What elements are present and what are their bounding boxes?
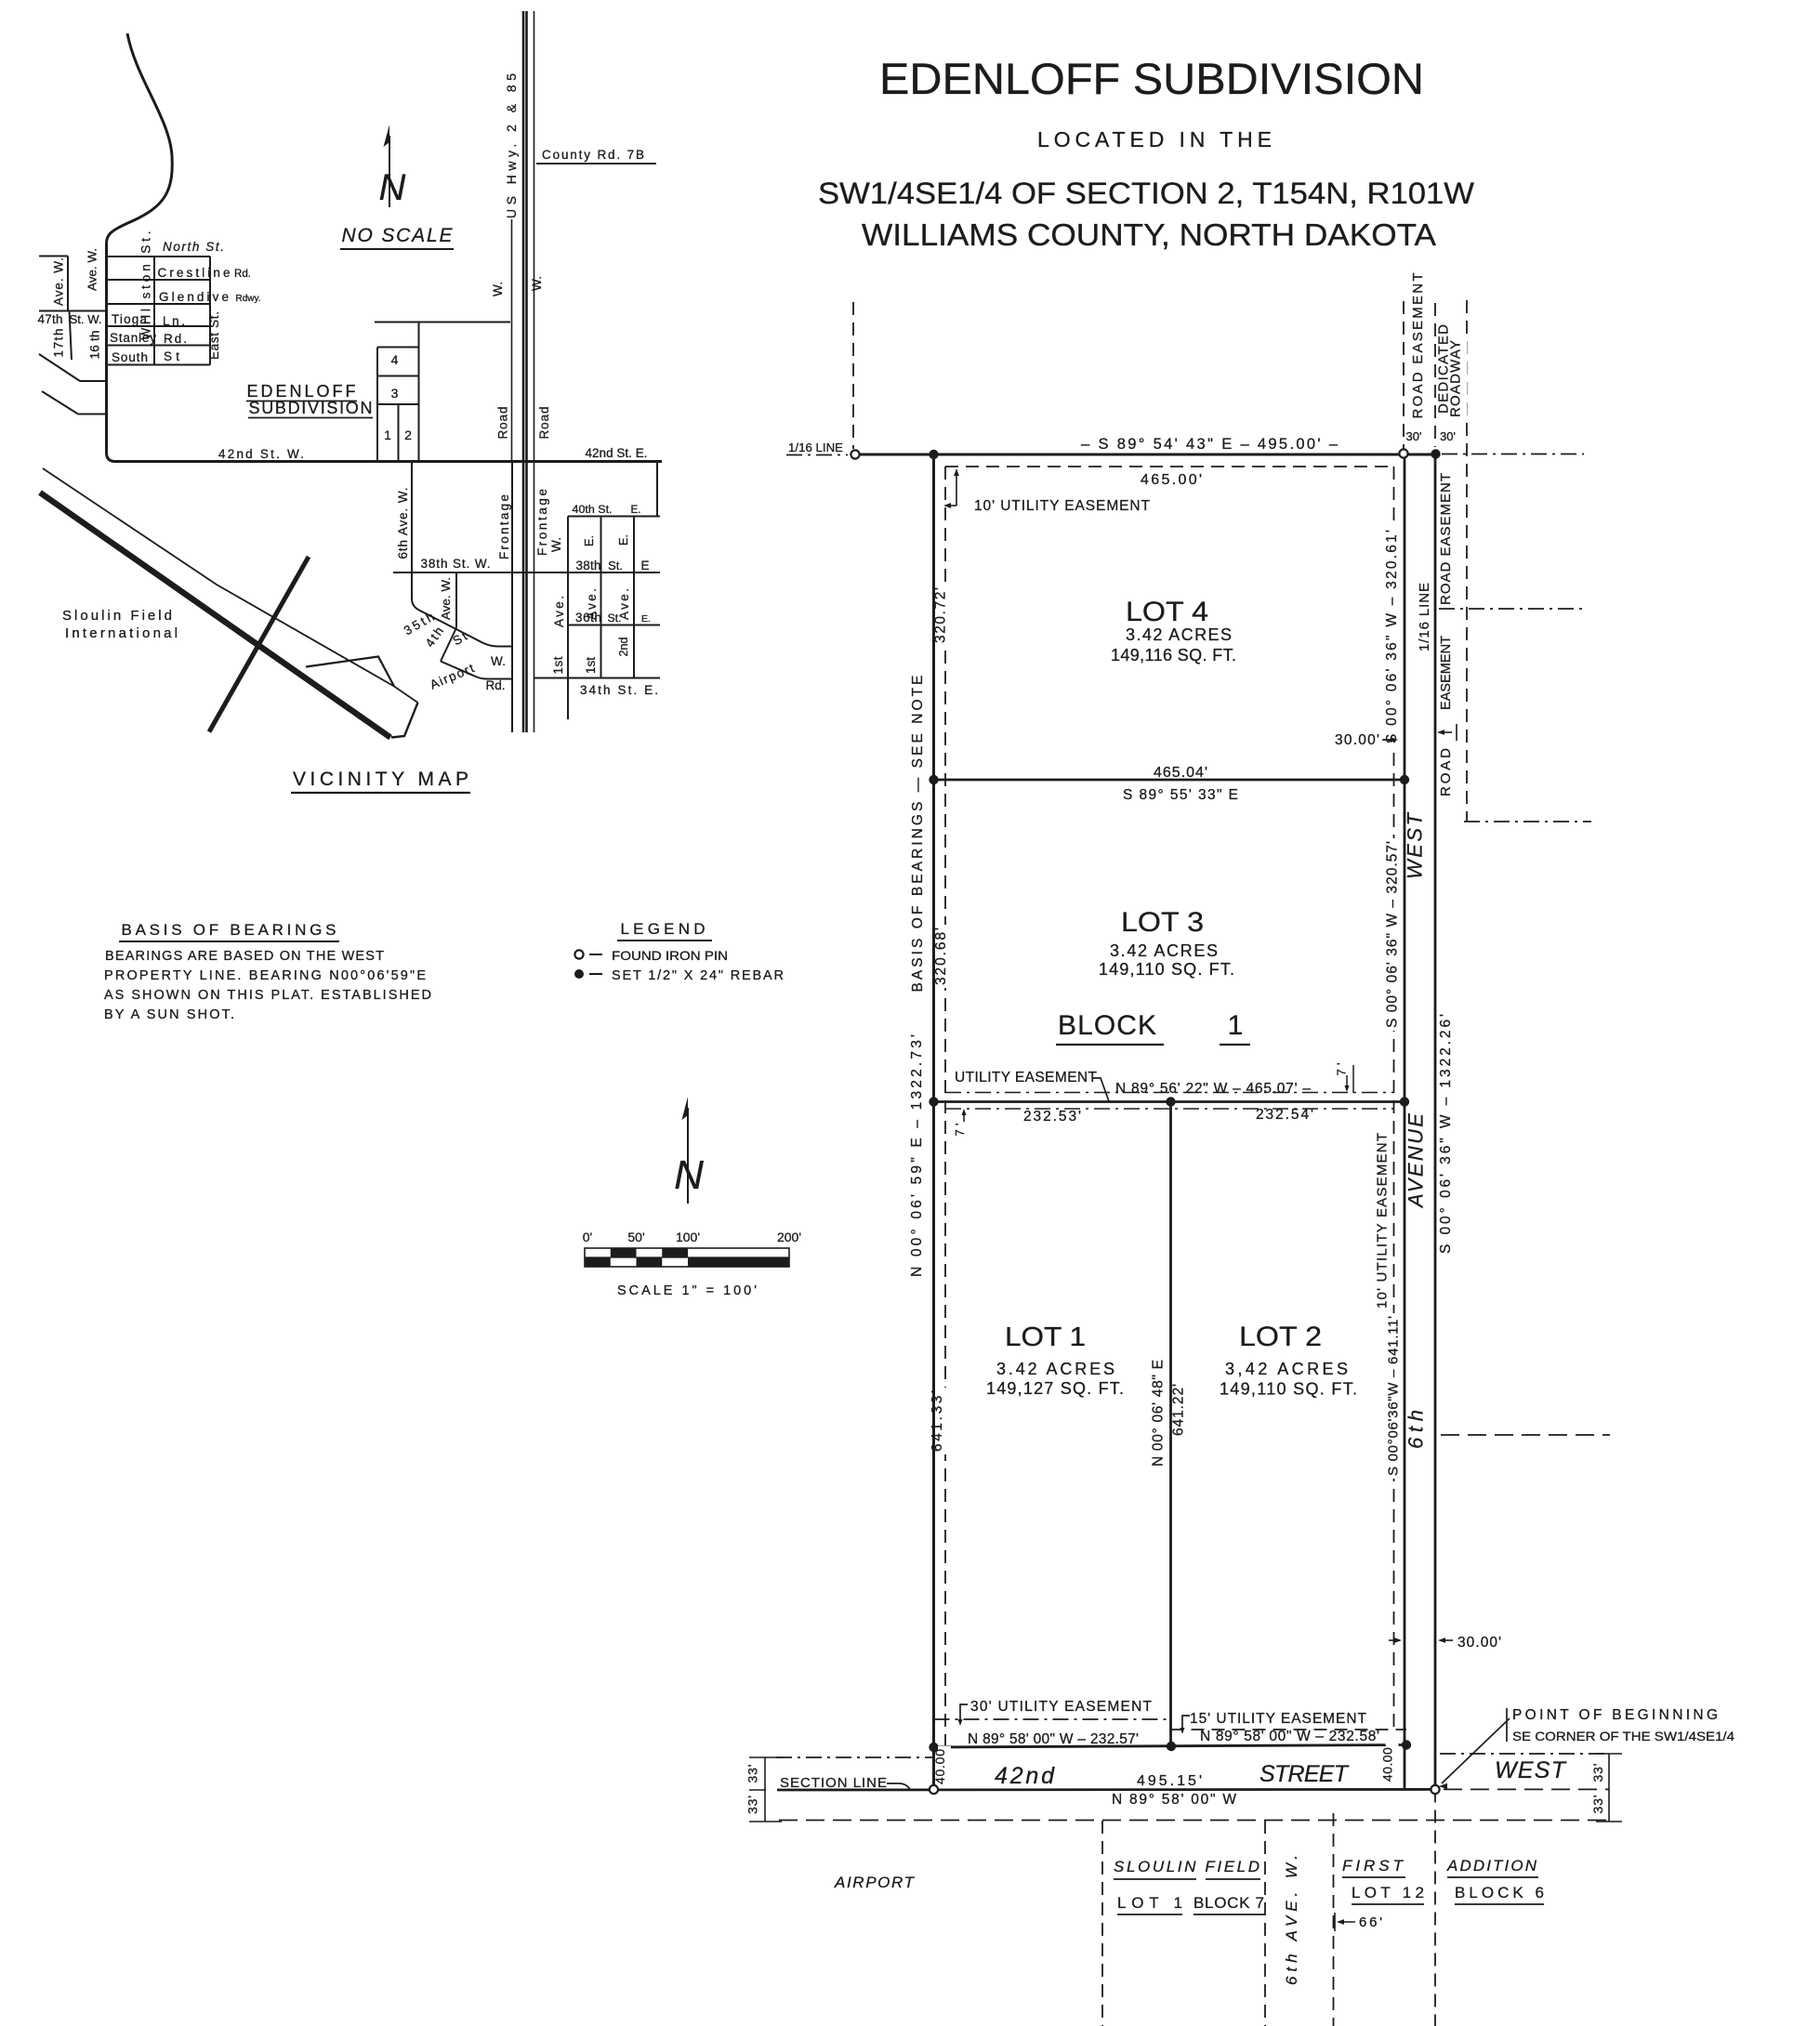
svg-text:3.42 ACRES: 3.42 ACRES [1126,625,1232,644]
svg-text:30.00': 30.00' [1335,732,1379,748]
svg-text:E: E [641,559,650,572]
svg-text:St: St [164,349,179,363]
svg-text:SECTION LINE: SECTION LINE [780,1775,887,1791]
svg-text:East St.: East St. [207,311,221,360]
svg-text:1st: 1st [584,657,598,674]
svg-text:N 89° 58' 00" W – 232.58': N 89° 58' 00" W – 232.58' [1200,1729,1379,1744]
svg-text:7': 7' [953,1124,967,1137]
svg-text:ROADWAY: ROADWAY [1448,340,1464,417]
svg-text:FIRST: FIRST [1342,1857,1405,1875]
svg-text:LEGEND: LEGEND [621,920,709,938]
svg-text:ADDITION: ADDITION [1446,1857,1538,1875]
svg-text:S 00°06'36"W – 641.11': S 00°06'36"W – 641.11' [1386,1316,1402,1476]
svg-text:N 89° 58' 00" W: N 89° 58' 00" W [1112,1792,1236,1808]
svg-text:3: 3 [391,386,399,401]
svg-text:LOT 3: LOT 3 [1121,908,1204,938]
svg-text:3.42 ACRES: 3.42 ACRES [1110,941,1218,960]
svg-text:1: 1 [384,428,391,442]
svg-text:40.00: 40.00 [932,1749,947,1784]
svg-text:30.00': 30.00' [1457,1635,1501,1651]
svg-text:S 00° 06' 36" W – 320.57': S 00° 06' 36" W – 320.57' [1385,841,1401,1028]
svg-text:0': 0' [583,1230,592,1244]
svg-text:WEST: WEST [1495,1757,1570,1783]
svg-text:465.04': 465.04' [1154,765,1207,781]
svg-text:50': 50' [627,1230,644,1244]
svg-text:1st: 1st [551,656,565,674]
svg-text:County Rd. 7B: County Rd. 7B [542,148,644,162]
svg-text:6th: 6th [1405,1410,1428,1449]
svg-text:Ave. W.: Ave. W. [86,248,99,291]
svg-text:SW1/4SE1/4 OF SECTION 2, T: SW1/4SE1/4 OF SECTION 2, T154N, R101W [818,177,1475,210]
svg-text:15' UTILITY EASEMENT: 15' UTILITY EASEMENT [1190,1711,1367,1727]
svg-text:E.: E. [583,535,596,546]
svg-text:VICINITY MAP: VICINITY MAP [293,769,468,790]
svg-text:Road: Road [537,407,551,440]
svg-text:LOT 1: LOT 1 [1005,1322,1086,1352]
svg-text:10' UTILITY EASEMENT: 10' UTILITY EASEMENT [1375,1133,1391,1309]
svg-text:POINT OF BEGINNING: POINT OF BEGINNING [1512,1707,1718,1723]
svg-text:33': 33' [745,1765,760,1783]
svg-text:Rd.: Rd. [486,678,506,692]
svg-text:SE CORNER OF THE SW1/4SE1/: SE CORNER OF THE SW1/4SE1/4 [1512,1729,1734,1743]
svg-text:EASEMENT: EASEMENT [1439,636,1454,710]
svg-text:SUBDIVISION: SUBDIVISION [249,399,373,417]
svg-text:1/16 LINE: 1/16 LINE [788,441,843,454]
svg-text:WEST: WEST [1404,811,1427,879]
svg-text:N: N [379,167,406,208]
svg-text:W.: W. [530,276,544,291]
svg-text:BY A SUN SHOT.: BY A SUN SHOT. [104,1007,234,1022]
svg-text:4: 4 [391,352,399,367]
svg-text:33': 33' [745,1796,760,1814]
svg-text:Ave. W.: Ave. W. [52,257,66,306]
svg-text:International: International [65,625,178,641]
svg-text:St.: St. [608,612,622,625]
svg-text:34th St. E.: 34th St. E. [580,683,658,697]
svg-text:UTILITY EASEMENT: UTILITY EASEMENT [955,1070,1098,1085]
svg-text:FOUND IRON PIN: FOUND IRON PIN [612,948,728,963]
svg-text:30' UTILITY EASEMENT: 30' UTILITY EASEMENT [970,1699,1153,1715]
svg-text:38th: 38th [576,559,601,572]
svg-text:Rd.: Rd. [164,332,187,346]
svg-text:BLOCK: BLOCK [1058,1010,1162,1041]
svg-text:N 89° 58' 00" W – 232.57': N 89° 58' 00" W – 232.57' [968,1731,1139,1747]
svg-text:AS SHOWN ON THIS PLAT. ESTABL: AS SHOWN ON THIS PLAT. ESTABLISHED [104,988,431,1003]
svg-text:St.: St. [608,559,623,572]
svg-text:Ln.: Ln. [163,314,185,328]
svg-text:BLOCK 6: BLOCK 6 [1455,1884,1544,1901]
svg-text:149,127 SQ. FT.: 149,127 SQ. FT. [986,1379,1124,1398]
svg-text:2: 2 [404,428,412,442]
svg-text:EDENLOFF: EDENLOFF [247,382,356,401]
svg-text:E.: E. [641,613,651,625]
svg-text:N 89° 56' 22" W – 465.07' –: N 89° 56' 22" W – 465.07' – [1115,1081,1311,1097]
svg-text:W.: W. [491,282,505,296]
svg-text:10' UTILITY EASEMENT: 10' UTILITY EASEMENT [974,498,1151,514]
svg-text:40th St.: 40th St. [573,503,613,516]
svg-text:SCALE 1" = 100': SCALE 1" = 100' [617,1283,757,1298]
svg-text:BEARINGS ARE BASED ON THE WEST: BEARINGS ARE BASED ON THE WEST [105,949,384,964]
svg-text:– S 89° 54' 43" E – 495.00' –: – S 89° 54' 43" E – 495.00' – [1081,436,1339,453]
svg-text:S 00° 06' 36" W – 1322.26': S 00° 06' 36" W – 1322.26' [1438,1014,1454,1254]
svg-text:2nd: 2nd [617,637,630,656]
svg-text:149,116 SQ. FT.: 149,116 SQ. FT. [1111,646,1236,664]
svg-text:STREET: STREET [1259,1761,1352,1787]
svg-text:42nd St. W.: 42nd St. W. [218,447,304,461]
svg-text:17th: 17th [52,329,66,358]
svg-text:South: South [112,350,148,364]
svg-text:S 89° 55' 33" E: S 89° 55' 33" E [1123,787,1238,803]
svg-text:66': 66' [1359,1914,1382,1930]
svg-text:16 th: 16 th [88,331,102,360]
svg-text:E.: E. [617,534,630,546]
svg-text:30': 30' [1406,429,1422,443]
svg-text:30': 30' [1440,429,1456,443]
svg-text:149,110 SQ. FT.: 149,110 SQ. FT. [1099,960,1234,979]
svg-text:SET 1/2" X 24" REBAR: SET 1/2" X 24" REBAR [612,968,784,983]
svg-text:LOT 2: LOT 2 [1239,1322,1322,1352]
svg-text:Rd.: Rd. [234,269,251,280]
svg-text:N: N [674,1152,704,1198]
svg-text:AIRPORT: AIRPORT [834,1874,917,1891]
svg-text:6th Ave. W.: 6th Ave. W. [396,488,410,559]
svg-text:St. W.: St. W. [70,312,102,326]
svg-text:47th: 47th [38,312,63,326]
svg-text:PROPERTY LINE. BEARING N00°06: PROPERTY LINE. BEARING N00°06'59"E [104,968,426,983]
svg-text:33': 33' [1590,1796,1605,1814]
svg-text:N 00° 06' 48" E: N 00° 06' 48" E [1151,1360,1167,1467]
svg-text:S 00° 06' 36" W – 320.61': S 00° 06' 36" W – 320.61' [1384,530,1400,743]
svg-text:Road: Road [496,407,510,440]
svg-text:641.22': 641.22' [1171,1384,1187,1436]
svg-text:1: 1 [1228,1010,1244,1041]
svg-text:NO SCALE: NO SCALE [342,225,454,246]
svg-text:100': 100' [676,1230,700,1244]
svg-text:Ave. W.: Ave. W. [439,577,453,620]
svg-text:EDENLOFF SUBDIVISION: EDENLOFF SUBDIVISION [879,55,1424,104]
svg-text:BASIS OF BEARINGS — SEE NOT: BASIS OF BEARINGS — SEE NOTE [910,676,926,993]
svg-text:BLOCK 7: BLOCK 7 [1194,1894,1264,1912]
svg-text:38th St. W.: 38th St. W. [421,557,491,571]
svg-text:40.00': 40.00' [1380,1744,1395,1782]
svg-text:200': 200' [777,1230,801,1244]
svg-text:W.: W. [549,537,563,552]
svg-text:LOT 4: LOT 4 [1126,598,1208,627]
svg-text:WILLIAMS COUNTY, NORTH DAKO: WILLIAMS COUNTY, NORTH DAKOTA [862,218,1437,253]
svg-text:36th: 36th [575,611,601,625]
svg-text:33': 33' [1590,1764,1605,1783]
svg-text:42nd: 42nd [995,1763,1055,1789]
svg-text:149,110 SQ. FT.: 149,110 SQ. FT. [1220,1380,1357,1399]
svg-text:Rdwy.: Rdwy. [236,294,261,304]
svg-text:1/16 LINE: 1/16 LINE [1417,583,1432,651]
svg-text:ROAD EASEMENT: ROAD EASEMENT [1438,473,1454,605]
svg-text:7': 7' [1335,1063,1349,1076]
svg-text:W.: W. [491,654,506,668]
svg-text:E.: E. [631,505,641,516]
svg-text:42nd St. E.: 42nd St. E. [586,446,648,460]
